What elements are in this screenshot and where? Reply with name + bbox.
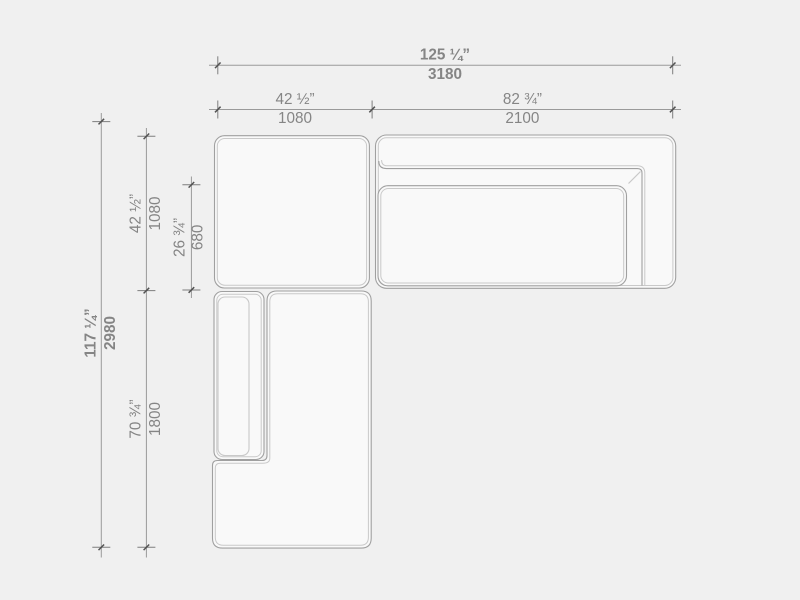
svg-text:1800: 1800 [147,402,164,436]
svg-text:1080: 1080 [278,110,312,127]
svg-text:125 ¼”: 125 ¼” [420,47,470,64]
svg-text:3180: 3180 [428,66,462,83]
svg-text:1080: 1080 [147,196,164,230]
svg-text:82 ¾”: 82 ¾” [503,91,542,108]
svg-text:42 ½”: 42 ½” [275,91,314,108]
svg-text:2980: 2980 [102,316,119,350]
svg-text:680: 680 [189,225,206,251]
svg-text:26 ¾”: 26 ¾” [172,218,189,257]
svg-text:117 ¼”: 117 ¼” [82,308,99,357]
svg-text:42 ½”: 42 ½” [128,194,145,233]
svg-text:70 ¾”: 70 ¾” [128,399,145,438]
svg-text:2100: 2100 [505,110,539,127]
